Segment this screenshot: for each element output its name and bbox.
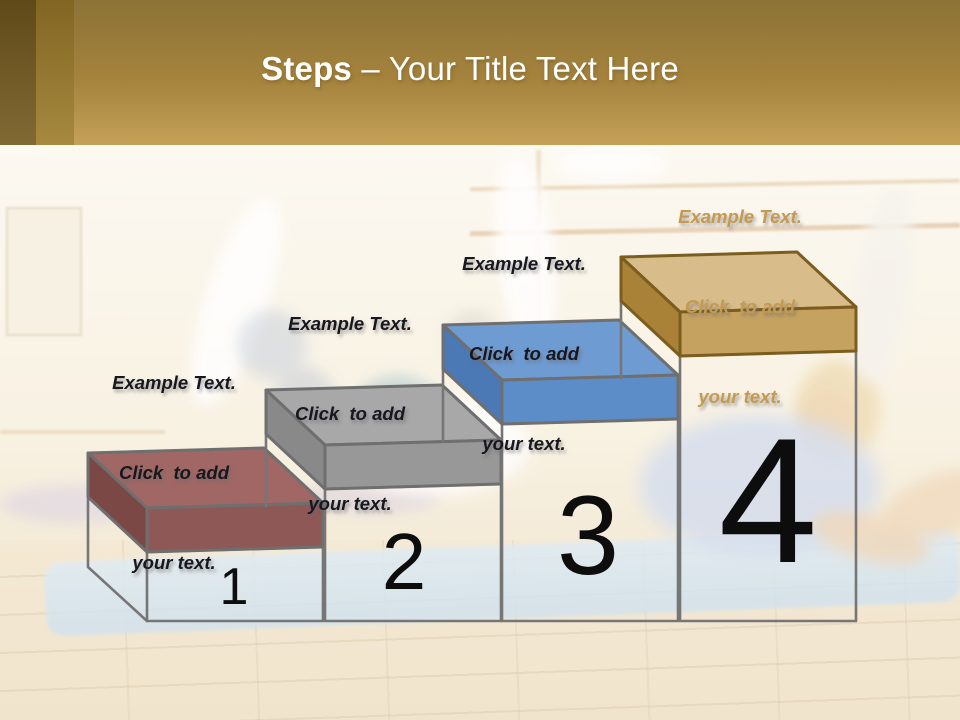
label-line: your text. [89, 548, 259, 578]
step3-placeholder-text[interactable]: Example Text. Click to add your text. [439, 189, 609, 519]
label-line: Example Text. [439, 249, 609, 279]
slide: Steps – Your Title Text Here 1 2 [0, 0, 960, 720]
label-line: your text. [655, 382, 825, 412]
step2-placeholder-text[interactable]: Example Text. Click to add your text. [265, 249, 435, 579]
label-line: Click to add [655, 292, 825, 322]
label-line: Example Text. [655, 202, 825, 232]
step1-placeholder-text[interactable]: Example Text. Click to add your text. [89, 308, 259, 638]
step4-placeholder-text[interactable]: Example Text. Click to add your text. [655, 142, 825, 472]
label-line: Click to add [89, 458, 259, 488]
label-line: Click to add [439, 339, 609, 369]
label-line: Click to add [265, 399, 435, 429]
label-line: your text. [439, 429, 609, 459]
label-line: Example Text. [89, 368, 259, 398]
label-line: Example Text. [265, 309, 435, 339]
label-line: your text. [265, 489, 435, 519]
